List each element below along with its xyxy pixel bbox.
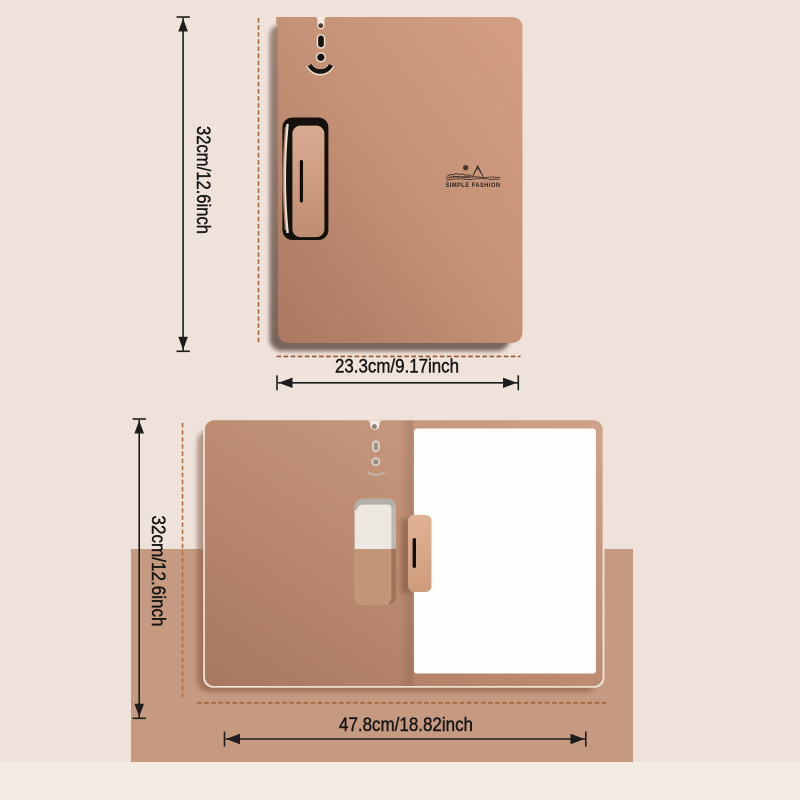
svg-text:SIMPLE FASHION: SIMPLE FASHION — [446, 183, 501, 189]
svg-text:32cm/12.6inch: 32cm/12.6inch — [147, 516, 169, 627]
svg-text:47.8cm/18.82inch: 47.8cm/18.82inch — [339, 714, 473, 736]
svg-text:23.3cm/9.17inch: 23.3cm/9.17inch — [335, 356, 459, 378]
svg-text:32cm/12.6inch: 32cm/12.6inch — [192, 126, 214, 234]
